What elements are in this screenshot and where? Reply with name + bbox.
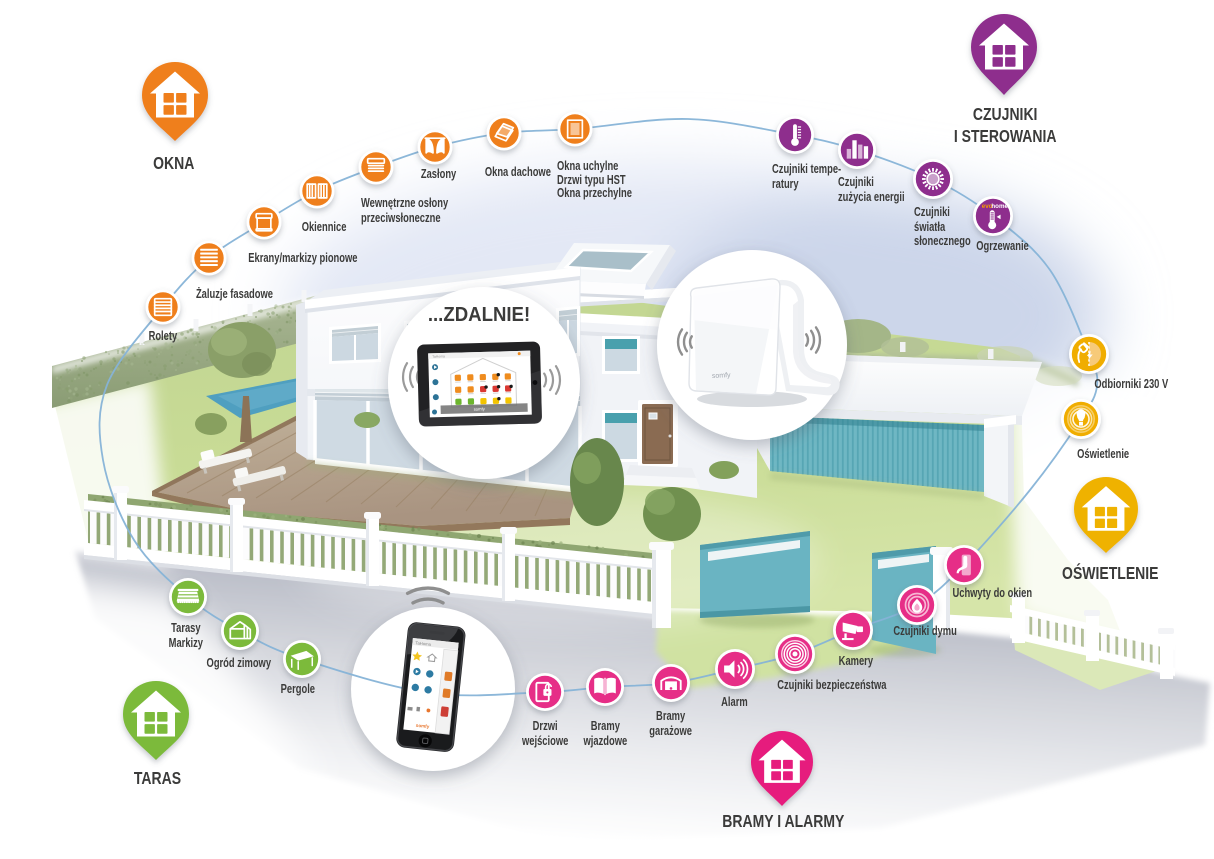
svg-text:somfy: somfy <box>474 406 486 411</box>
svg-text:somfy: somfy <box>712 372 732 380</box>
svg-text:home: home <box>991 203 1008 210</box>
svg-text:TaHoma: TaHoma <box>432 354 445 358</box>
